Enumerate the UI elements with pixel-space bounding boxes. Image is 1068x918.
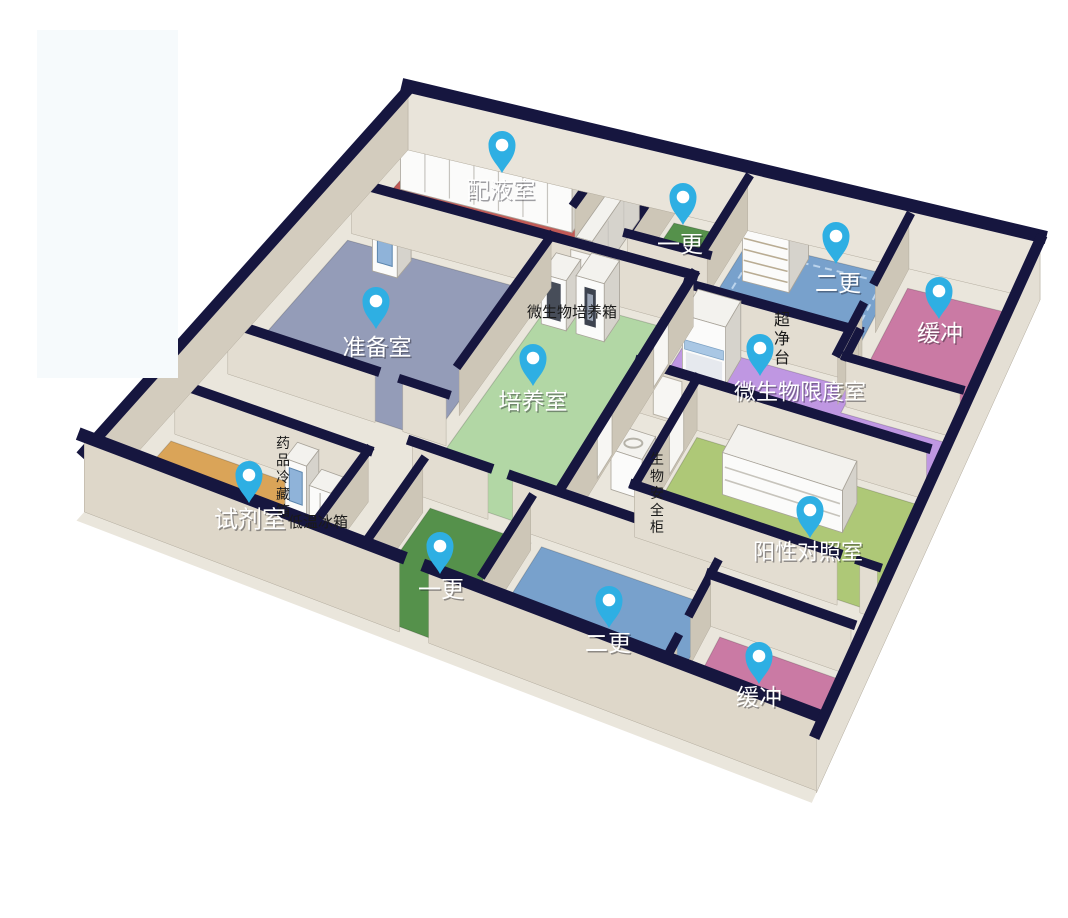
equipment-label-1: 超净台 bbox=[774, 310, 790, 367]
room-label-peiye: 配液室 bbox=[467, 178, 536, 204]
pin-inner-dot bbox=[804, 504, 817, 517]
equipment-incubator-right bbox=[576, 253, 620, 342]
glass-window bbox=[289, 468, 302, 506]
pin-inner-dot bbox=[434, 540, 447, 553]
equipment-label-4: 生物安全柜 bbox=[650, 452, 664, 536]
watermark-area bbox=[37, 30, 178, 378]
room-label-huanchong-top: 缓冲 bbox=[917, 321, 963, 347]
room-label-yigeng-bottom: 一更 bbox=[418, 577, 464, 603]
pin-inner-dot bbox=[496, 139, 509, 152]
pin-inner-dot bbox=[754, 342, 767, 355]
room-label-weishengwu-xiandu: 微生物限度室 bbox=[734, 381, 866, 406]
room-label-peiyang: 培养室 bbox=[499, 389, 568, 415]
room-label-ergeng-bottom: 二更 bbox=[585, 631, 631, 657]
pin-inner-dot bbox=[830, 230, 843, 243]
pin-inner-dot bbox=[603, 594, 616, 607]
room-label-huanchong-bottom: 缓冲 bbox=[736, 685, 782, 711]
room-label-yangxing-duizhao: 阳性对照室 bbox=[753, 541, 863, 566]
pin-inner-dot bbox=[527, 352, 540, 365]
pin-inner-dot bbox=[677, 191, 690, 204]
equipment-label-3: 低温冰箱 bbox=[288, 513, 348, 531]
pin-inner-dot bbox=[370, 295, 383, 308]
room-label-ergeng-top: 二更 bbox=[815, 271, 861, 297]
room-label-yigeng-top: 一更 bbox=[657, 232, 703, 258]
room-label-shiji: 试剂室 bbox=[214, 505, 286, 533]
pin-inner-dot bbox=[933, 285, 946, 298]
burner-ring bbox=[624, 439, 642, 448]
pin-inner-dot bbox=[243, 469, 256, 482]
equipment-label-0: 微生物培养箱 bbox=[527, 303, 617, 321]
floorplan-stage: 微生物培养箱超净台药品冷藏箱低温冰箱生物安全柜配液室配液室一更一更二更二更缓冲缓… bbox=[0, 0, 1068, 918]
room-label-zhunbei: 准备室 bbox=[343, 335, 412, 361]
pin-inner-dot bbox=[753, 650, 766, 663]
